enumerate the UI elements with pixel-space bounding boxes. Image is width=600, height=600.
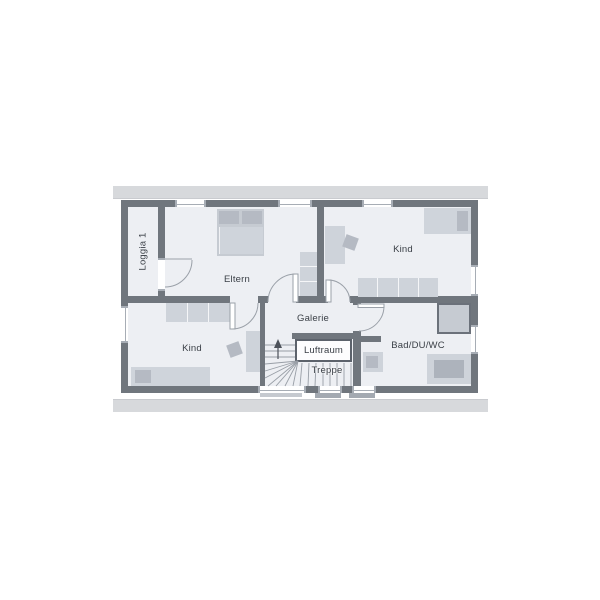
window [175, 200, 206, 207]
door-opening-eltern [268, 296, 296, 303]
window [278, 200, 312, 207]
room-label-treppe: Treppe [300, 365, 354, 376]
bed-pillow [242, 211, 262, 224]
luftraum-void: Luftraum [295, 339, 352, 362]
room-label-eltern: Eltern [202, 274, 272, 285]
room-label-galerie: Galerie [278, 313, 348, 324]
kind-bottom-desk [246, 331, 260, 372]
window [471, 325, 478, 354]
window [352, 386, 376, 393]
window-sill [349, 393, 375, 398]
washbasin [363, 352, 383, 372]
kind-bottom-bed [131, 367, 210, 386]
washbasin-bowl [366, 356, 378, 368]
window-sill [260, 393, 302, 397]
room-label-loggia: Loggia 1 [138, 217, 149, 287]
loggia-door-panel [158, 258, 165, 291]
bed-blanket [219, 227, 263, 254]
door-opening-bad [353, 305, 361, 331]
shower [437, 303, 471, 334]
stairs-entrance-opening [265, 333, 292, 339]
bathtub-basin [434, 360, 464, 378]
room-label-kind-top: Kind [368, 244, 438, 255]
bed-pillow [135, 370, 151, 383]
bed-pillow [219, 211, 239, 224]
floor-plan: Luftraum [0, 0, 600, 600]
window-sill [315, 393, 341, 398]
window [121, 306, 128, 343]
roof-band-top [113, 186, 488, 199]
bed-pillow [457, 211, 468, 231]
room-label-bad: Bad/DU/WC [383, 340, 453, 351]
luftraum-label: Luftraum [297, 345, 350, 356]
window [318, 386, 342, 393]
bathtub [427, 354, 471, 384]
window [258, 386, 306, 393]
kind-top-bed [424, 208, 471, 234]
room-label-kind-bottom: Kind [157, 343, 227, 354]
kind-top-wardrobe [358, 278, 438, 297]
roof-band-bottom [113, 399, 488, 412]
eltern-closet [300, 252, 317, 296]
window [362, 200, 393, 207]
eltern-double-bed [217, 209, 264, 256]
door-opening-kind-bottom [230, 296, 258, 303]
window [471, 265, 478, 296]
kind-bottom-wardrobe [166, 303, 230, 322]
door-opening-kind-top [328, 296, 350, 303]
bad-partition-stub [361, 336, 381, 342]
